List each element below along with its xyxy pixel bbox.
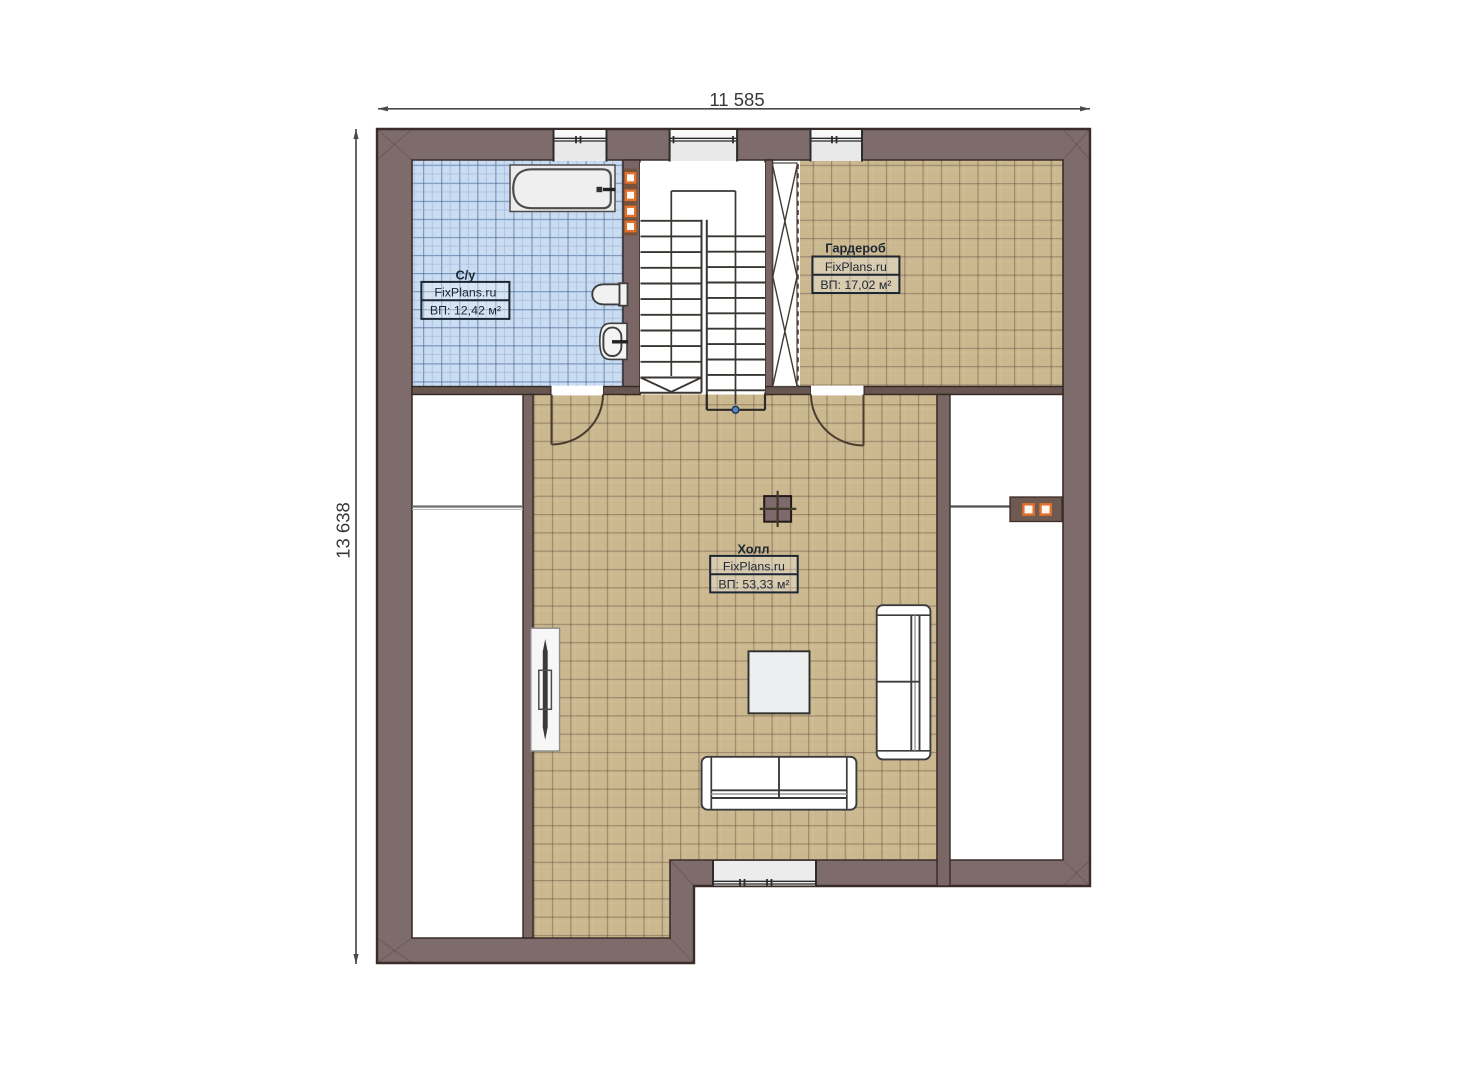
svg-text:FixPlans.ru: FixPlans.ru [434, 285, 496, 299]
svg-text:FixPlans.ru: FixPlans.ru [723, 559, 785, 573]
svg-text:ВП: 17,02 м²: ВП: 17,02 м² [820, 278, 891, 292]
svg-text:С/у: С/у [455, 268, 476, 283]
svg-text:ВП: 12,42 м²: ВП: 12,42 м² [430, 304, 501, 318]
svg-text:FixPlans.ru: FixPlans.ru [825, 260, 887, 274]
svg-text:13 638: 13 638 [333, 502, 354, 559]
svg-text:ВП: 53,33 м²: ВП: 53,33 м² [718, 578, 789, 592]
svg-text:Гардероб: Гардероб [825, 241, 886, 256]
svg-text:Холл: Холл [737, 542, 769, 557]
svg-text:11 585: 11 585 [709, 89, 764, 110]
